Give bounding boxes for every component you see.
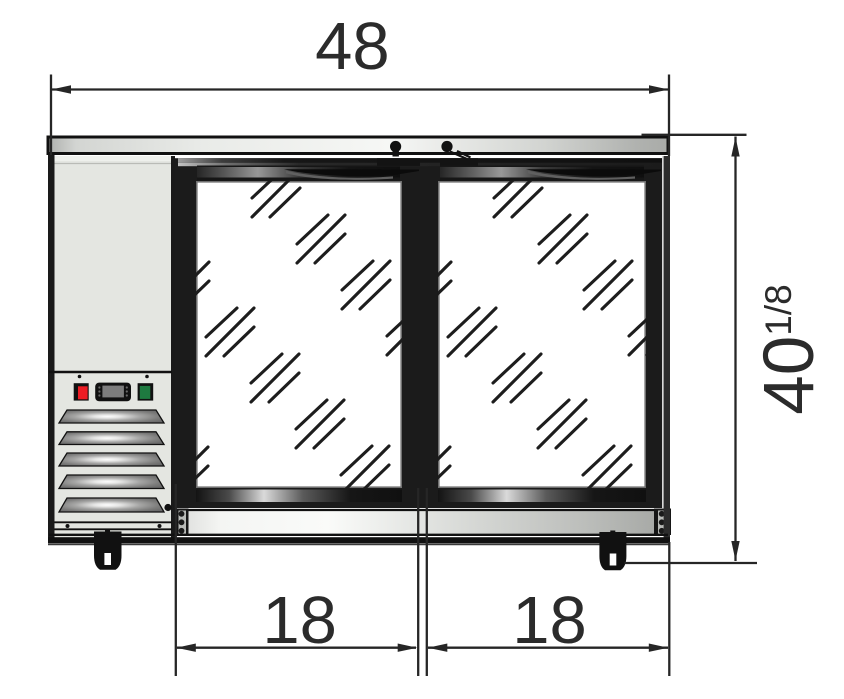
svg-text:18: 18: [262, 583, 337, 658]
svg-text:18: 18: [512, 583, 587, 658]
svg-text:48: 48: [315, 9, 390, 84]
